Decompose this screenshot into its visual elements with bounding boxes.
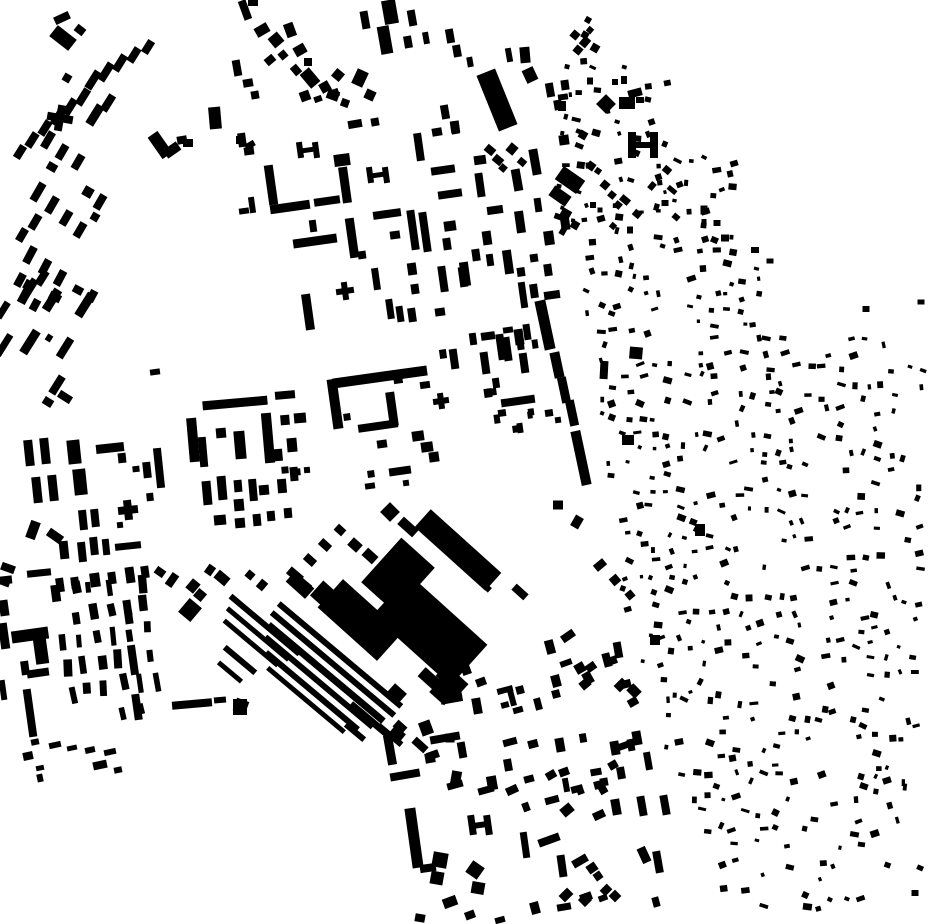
building-footprint-small [673,692,677,697]
building-footprint-small [848,351,858,360]
building-footprint [237,133,247,148]
building-footprint-small [789,439,793,444]
building-footprint [554,737,565,752]
building-footprint-small [801,891,809,899]
building-footprint-small [609,385,617,390]
building-footprint-small [891,408,896,414]
building-footprint-small [774,387,783,395]
building-footprint-small [755,619,764,628]
building-footprint-small [885,765,889,770]
building-footprint-small [636,361,645,367]
building-footprint-small [607,473,614,479]
building-footprint-small [98,655,108,670]
building-footprint-small [693,574,699,580]
building-footprint-small [884,629,891,636]
building-footprint [333,153,351,167]
building-footprint [558,101,566,111]
building-footprint [55,143,70,161]
building-footprint [30,738,39,746]
building-footprint-small [747,761,753,767]
building-footprint-small [843,467,850,473]
building-footprint-small [724,639,731,645]
building-footprint [445,28,455,43]
building-footprint-small [144,621,151,632]
building-footprint-small [651,306,659,311]
building-footprint [389,230,400,239]
building-footprint [619,97,635,109]
building-footprint-small [773,743,781,749]
building-footprint [363,88,376,101]
building-footprint-small [638,211,644,214]
building-footprint-small [874,527,880,530]
building-footprint-small [821,653,831,659]
building-footprint-small [667,361,672,366]
building-footprint [519,47,530,64]
building-footprint [72,284,85,296]
building-footprint-small [862,554,869,561]
building-footprint [44,195,60,215]
building-footprint [301,294,315,331]
building-footprint [371,268,381,291]
building-footprint-small [88,603,99,620]
building-footprint-small [845,598,850,602]
building-footprint [96,442,125,454]
building-footprint [286,438,297,453]
building-footprint [560,79,569,90]
building-footprint [430,731,461,744]
building-footprint-small [788,715,796,722]
building-footprint-small [629,262,635,269]
building-footprint [73,221,88,239]
building-footprint [505,142,518,155]
building-footprint [30,181,47,202]
building-footprint-small [862,707,870,712]
building-footprint [573,661,587,675]
building-footprint [390,768,421,781]
building-footprint [253,22,270,38]
building-footprint [431,851,448,868]
building-footprint-small [788,417,796,425]
building-footprint-small [619,585,626,592]
building-footprint-small [916,864,924,871]
building-footprint [0,623,10,650]
building-footprint [22,751,33,761]
building-footprint [442,895,459,909]
building-footprint [49,741,62,749]
building-footprint-small [627,286,634,293]
building-footprint [610,798,622,815]
building-footprint [62,73,73,84]
building-footprint-small [794,666,801,672]
building-footprint [505,784,519,796]
building-footprint [289,467,298,482]
building-footprint [545,82,555,97]
building-footprint [403,480,410,487]
building-footprint-small [599,357,603,363]
building-footprint [248,479,258,502]
building-footprint-small [854,796,859,803]
building-footprint-small [608,327,617,332]
building-footprint-small [644,96,651,102]
building-footprint [47,475,59,502]
building-footprint [372,172,385,179]
building-footprint [515,685,525,695]
building-footprint-small [724,580,730,586]
building-footprint [442,238,452,251]
building-footprint [571,854,589,869]
building-footprint [457,741,468,758]
building-footprint-small [723,292,727,295]
building-footprint [381,0,399,25]
building-footprint-small [719,730,726,735]
building-footprint-small [725,546,731,551]
building-footprint-small [801,494,808,498]
building-footprint-small [138,594,148,611]
building-footprint-small [792,534,796,539]
building-footprint-small [614,158,623,165]
building-footprint [464,910,476,921]
building-footprint-small [858,630,864,635]
building-footprint [522,66,539,84]
building-footprint-small [676,181,684,189]
building-footprint-small [698,807,707,812]
building-footprint [19,329,40,356]
building-footprint [418,719,434,736]
building-footprint-small [790,778,799,786]
building-footprint-small [873,426,878,432]
building-footprint-small [652,431,659,437]
building-footprint [302,147,315,154]
building-footprint-small [740,349,750,355]
building-footprint [471,249,481,262]
building-footprint-small [835,435,842,442]
building-footprint [437,393,445,410]
building-footprint-small [867,673,875,678]
building-footprint [351,68,369,88]
building-footprint-small [93,630,102,644]
building-footprint-small [665,443,671,448]
building-footprint-small [704,772,713,779]
building-footprint-small [701,235,709,243]
building-footprint [609,890,622,903]
building-footprint-small [801,461,808,467]
building-footprint [341,282,349,301]
building-footprint-small [822,706,829,714]
building-footprint-small [764,594,772,601]
building-footprint-small [817,770,827,779]
building-footprint-small [693,609,700,615]
building-footprint-small [741,887,750,894]
building-footprint-small [737,701,742,709]
building-footprint [596,94,616,114]
building-footprint-small [571,117,581,123]
building-footprint [232,59,243,76]
building-footprint [56,337,74,360]
building-footprint-small [762,564,766,570]
building-footprint-small [728,754,736,762]
building-footprint [475,677,487,688]
building-footprint-small [770,681,777,686]
building-footprint-small [730,593,738,601]
building-footprint-small [665,564,673,571]
building-footprint [53,11,71,25]
building-footprint [22,245,38,265]
building-footprint [452,44,462,57]
building-footprint-small [719,558,729,567]
building-footprint-small [729,249,737,257]
building-footprint-small [662,460,671,468]
building-footprint-small [730,160,739,168]
building-footprint-small [613,203,618,208]
building-footprint-small [756,335,762,342]
building-footprint [515,332,524,351]
building-footprint-small [713,247,721,252]
building-footprint-small [723,307,730,311]
building-footprint-small [672,198,677,202]
building-footprint-small [761,335,771,341]
building-footprint-small [608,310,616,317]
building-footprint [418,212,431,253]
building-footprint-small [574,142,584,150]
building-footprint [89,537,99,556]
building-footprint-small [564,64,570,70]
building-footprint [431,164,456,175]
building-footprint [112,53,128,73]
building-footprint-small [718,822,725,830]
building-footprint-small [899,455,906,463]
building-footprint [662,200,669,206]
building-footprint-small [663,79,671,86]
building-footprint [343,413,351,421]
building-footprint-small [682,398,692,405]
building-footprint [127,645,139,676]
building-footprint [407,308,417,323]
building-footprint-small [903,783,908,790]
building-footprint [0,333,13,357]
building-footprint [514,210,526,233]
building-footprint [585,661,598,673]
building-footprint-small [649,476,655,480]
building-footprint-small [726,827,736,834]
building-footprint [49,25,77,51]
building-footprint-small [606,461,610,466]
building-footprint [27,568,52,577]
building-footprint-small [663,471,671,477]
building-footprint-small [838,845,842,850]
building-footprint-small [779,335,787,341]
building-footprint-small [580,58,587,65]
building-footprint [102,539,111,556]
building-footprint-small [730,514,737,521]
building-footprint [560,629,576,644]
building-footprint-small [639,416,647,422]
building-footprint [449,349,460,370]
building-footprint [259,485,270,496]
building-footprint [545,769,558,781]
building-footprint [74,24,87,36]
building-footprint [216,476,227,501]
building-footprint [428,451,439,462]
building-footprint-small [585,162,592,169]
building-footprint-small [700,222,706,228]
building-footprint-small [860,395,866,402]
building-footprint-small [915,549,924,557]
building-footprint-small [794,407,804,415]
building-footprint-small [607,399,616,408]
building-footprint-small [718,861,727,870]
building-footprint-small [850,568,857,572]
building-footprint-small [789,446,794,452]
building-footprint-small [662,433,670,441]
building-footprint-small [829,615,834,620]
building-footprint [590,43,601,54]
building-footprint-small [682,579,689,586]
building-footprint [558,134,569,145]
building-footprint [503,326,514,333]
building-footprint [28,213,43,231]
building-footprint-small [792,693,801,701]
building-footprint [637,846,652,864]
building-footprint-small [636,530,643,537]
building-footprint-small [659,243,665,248]
building-footprint-small [636,502,644,510]
building-footprint [256,579,269,592]
building-footprint [503,758,513,771]
building-footprint-small [748,506,751,510]
building-footprint-small [877,381,883,388]
building-footprint-small [585,255,594,261]
building-footprint-small [857,773,865,781]
building-footprint [0,301,11,320]
building-footprint-small [702,444,708,451]
building-footprint [579,36,592,49]
building-footprint-small [795,729,799,734]
building-footprint-small [107,603,117,617]
building-footprint [599,777,608,786]
building-footprint-small [843,524,851,530]
building-footprint [429,870,444,885]
building-footprint-small [709,308,715,313]
building-footprint [248,197,256,214]
building-footprint [557,855,568,878]
building-footprint-small [852,382,858,389]
building-footprint-small [687,304,693,308]
building-footprint-small [681,442,685,449]
building-footprint [918,300,925,305]
building-footprint-small [756,291,762,297]
building-footprint-small [837,421,845,428]
building-footprint [15,227,29,243]
building-footprint-small [814,717,822,723]
building-footprint-small [916,484,921,491]
building-footprint [522,324,531,341]
building-footprint [198,437,209,468]
building-footprint-small [871,480,881,486]
building-footprint-small [664,745,668,750]
building-footprint-small [110,627,117,646]
building-footprint-small [647,118,655,126]
building-footprint-small [710,335,719,340]
building-footprint-small [705,738,715,747]
building-footprint [652,850,664,873]
building-footprint-small [801,565,811,572]
building-footprint-small [697,678,704,686]
building-footprint-small [780,349,790,356]
building-footprint-small [560,131,565,136]
building-footprint [471,697,483,714]
building-footprint-small [714,646,724,654]
building-footprint-small [712,167,722,174]
building-footprint-small [626,417,632,423]
building-footprint-small [915,602,923,608]
building-footprint [553,501,563,510]
building-footprint-small [619,517,628,523]
building-footprint-small [827,897,833,903]
building-footprint-small [602,341,608,348]
building-footprint-small [734,769,739,776]
building-footprint-small [739,611,744,618]
building-footprint [261,413,275,464]
building-footprint [59,209,74,227]
building-footprint [523,774,534,783]
building-footprint-small [884,654,889,661]
building-footprint-small [820,860,827,866]
building-footprint-small [873,456,881,462]
building-footprint [283,22,297,39]
building-footprint [544,639,556,655]
building-footprint-small [669,548,675,555]
building-footprint [275,390,296,400]
building-footprint-small [890,453,895,459]
building-footprint-small [750,717,755,722]
building-footprint [671,212,680,221]
building-footprint-small [879,696,885,701]
building-footprint-small [575,90,581,95]
building-footprint-small [762,477,769,483]
building-footprint-small [841,657,846,663]
building-footprint-small [697,248,703,253]
building-footprint [373,208,402,220]
building-footprint [486,254,495,267]
building-footprint-small [63,659,72,677]
building-footprint-small [729,235,733,240]
building-footprint-small [871,625,878,629]
building-footprint [318,538,332,552]
building-footprint-small [858,842,866,848]
building-footprint [23,440,35,467]
building-footprint [59,541,70,560]
building-footprint-small [664,396,672,404]
building-footprint [77,542,87,563]
building-footprint [474,173,485,198]
building-footprint-small [614,270,622,278]
building-footprint [487,205,504,215]
building-footprint [590,202,596,208]
building-footprint-small [716,435,725,442]
building-footprint [233,699,247,715]
building-footprint [659,794,670,815]
building-footprint [115,541,142,551]
building-footprint [389,466,412,477]
building-footprint [534,198,543,213]
building-footprint-small [827,681,836,690]
building-footprint [178,598,202,622]
building-footprint-small [759,770,768,777]
building-footprint [512,706,523,714]
building-footprint-small [569,92,572,97]
building-footprint-small [678,610,687,615]
building-footprint [36,765,45,772]
